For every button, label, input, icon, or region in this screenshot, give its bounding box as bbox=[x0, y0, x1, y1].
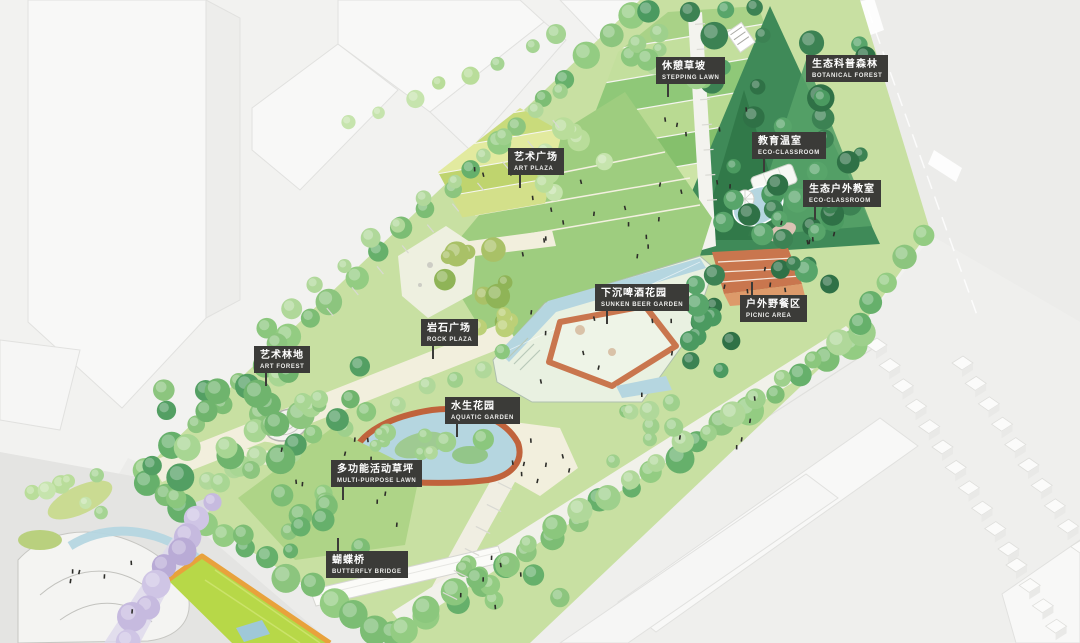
play-structure bbox=[608, 348, 616, 356]
masterplan-illustration bbox=[0, 0, 1080, 643]
park-masterplan: 休憩草坡STEPPING LAWN 生态科普森林BOTANICAL FOREST… bbox=[0, 0, 1080, 643]
play-structure bbox=[575, 325, 585, 335]
tower-side bbox=[206, 0, 240, 318]
